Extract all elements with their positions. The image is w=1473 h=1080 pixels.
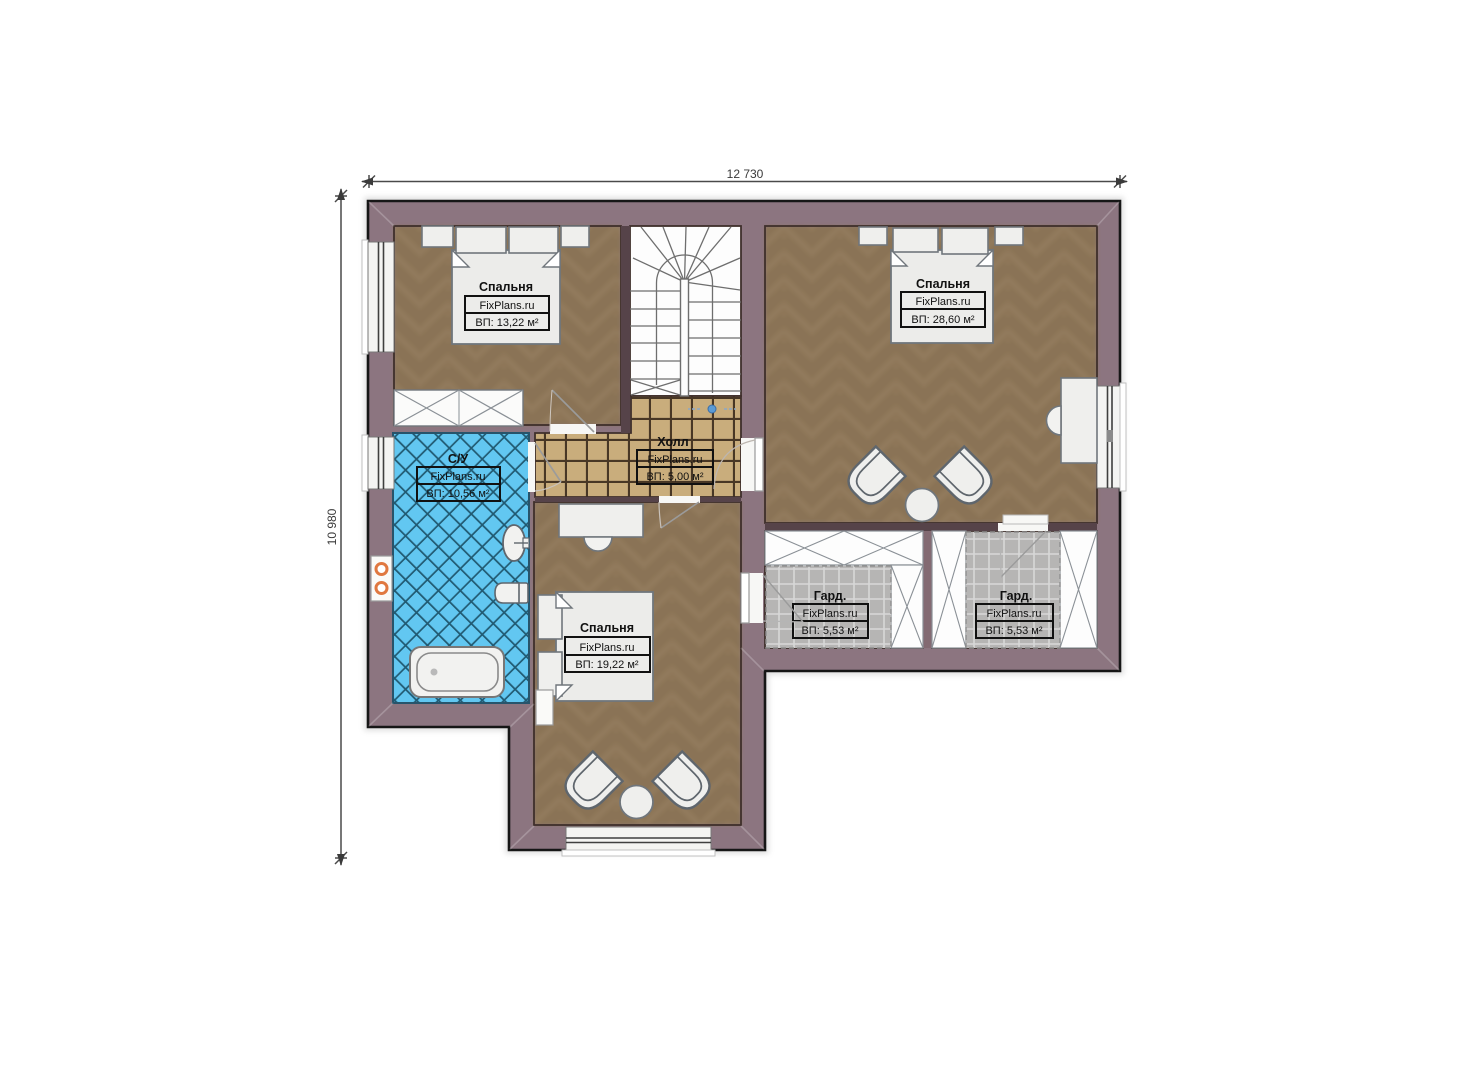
svg-text:FixPlans.ru: FixPlans.ru [915, 296, 970, 308]
svg-text:FixPlans.ru: FixPlans.ru [986, 608, 1041, 620]
svg-text:ВП: 28,60 м²: ВП: 28,60 м² [911, 314, 975, 326]
svg-text:FixPlans.ru: FixPlans.ru [579, 642, 634, 654]
svg-text:Спальня: Спальня [580, 621, 634, 635]
svg-text:ВП: 5,53 м²: ВП: 5,53 м² [801, 625, 858, 637]
svg-text:ВП: 10,56 м²: ВП: 10,56 м² [426, 488, 490, 500]
svg-text:С/У: С/У [448, 452, 469, 466]
svg-text:12 730: 12 730 [727, 167, 764, 181]
svg-text:Гард.: Гард. [814, 589, 847, 603]
svg-text:Спальня: Спальня [479, 280, 533, 294]
svg-text:Гард.: Гард. [1000, 589, 1033, 603]
svg-text:FixPlans.ru: FixPlans.ru [647, 454, 702, 466]
svg-text:ВП: 5,00 м²: ВП: 5,00 м² [646, 471, 703, 483]
svg-text:ВП: 19,22 м²: ВП: 19,22 м² [575, 659, 639, 671]
svg-text:FixPlans.ru: FixPlans.ru [430, 471, 485, 483]
svg-text:FixPlans.ru: FixPlans.ru [479, 300, 534, 312]
svg-text:ВП: 13,22 м²: ВП: 13,22 м² [475, 317, 539, 329]
svg-text:ВП: 5,53 м²: ВП: 5,53 м² [985, 625, 1042, 637]
svg-text:10 980: 10 980 [325, 508, 339, 545]
svg-text:Холл: Холл [657, 435, 688, 449]
svg-text:FixPlans.ru: FixPlans.ru [802, 608, 857, 620]
svg-text:Спальня: Спальня [916, 277, 970, 291]
